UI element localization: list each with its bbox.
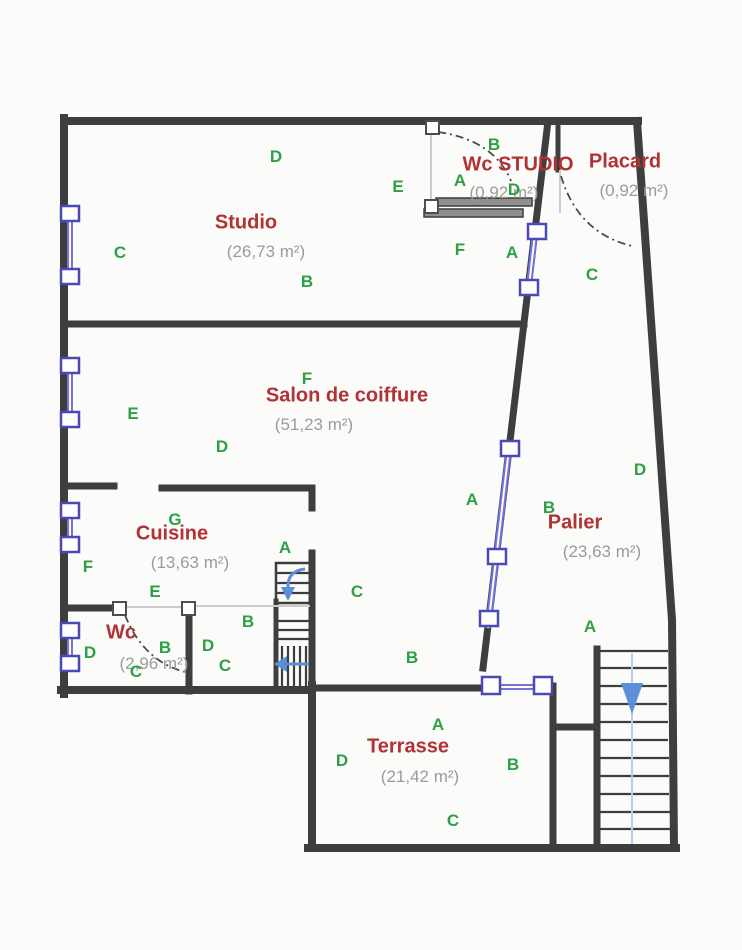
- dimension-letter-d: D: [84, 643, 96, 663]
- dimension-letter-e: E: [127, 404, 138, 424]
- room-name-wc-studio: Wc STUDIO: [462, 154, 573, 177]
- dimension-letter-b: B: [488, 135, 500, 155]
- dimension-letter-d: D: [270, 147, 282, 167]
- dimension-letter-b: B: [406, 648, 418, 668]
- dimension-letter-c: C: [114, 243, 126, 263]
- room-name-studio: Studio: [215, 212, 277, 235]
- dimension-letter-d: D: [508, 180, 520, 200]
- dimension-letter-d: D: [216, 437, 228, 457]
- room-name-salon: Salon de coiffure: [266, 385, 428, 408]
- room-area-placard: (0,92 m²): [600, 181, 669, 201]
- room-area-salon: (51,23 m²): [275, 415, 353, 435]
- dimension-letter-e: E: [392, 177, 403, 197]
- dimension-letter-a: A: [279, 538, 291, 558]
- dimension-letter-c: C: [447, 811, 459, 831]
- dimension-letter-f: F: [83, 557, 93, 577]
- room-name-wc: Wc: [106, 622, 136, 645]
- dimension-letter-b: B: [543, 498, 555, 518]
- room-area-terrasse: (21,42 m²): [381, 767, 459, 787]
- dimension-letter-b: B: [507, 755, 519, 775]
- room-area-palier: (23,63 m²): [563, 542, 641, 562]
- staircase-main: [597, 651, 670, 844]
- palier-bottom-window: [482, 677, 552, 694]
- dimension-letter-d: D: [202, 636, 214, 656]
- dimension-letter-b: B: [159, 638, 171, 658]
- dimension-letter-g: G: [168, 510, 181, 530]
- interior-walls: [64, 121, 597, 848]
- dimension-letter-d: D: [634, 460, 646, 480]
- staircase-small: [274, 563, 314, 687]
- dimension-letter-a: A: [466, 490, 478, 510]
- dimension-letter-f: F: [455, 240, 465, 260]
- dimension-letter-f: F: [302, 369, 312, 389]
- room-area-cuisine: (13,63 m²): [151, 553, 229, 573]
- dimension-letter-e: E: [149, 582, 160, 602]
- dimension-letter-a: A: [506, 243, 518, 263]
- dimension-letter-c: C: [586, 265, 598, 285]
- dimension-letter-a: A: [584, 617, 596, 637]
- dimension-letter-a: A: [432, 715, 444, 735]
- dimension-letter-b: B: [242, 612, 254, 632]
- dimension-letter-a: A: [454, 171, 466, 191]
- floorplan-drawing: [0, 0, 742, 950]
- dimension-letter-d: D: [336, 751, 348, 771]
- room-area-studio: (26,73 m²): [227, 242, 305, 262]
- dimension-letter-c: C: [351, 582, 363, 602]
- room-name-palier: Palier: [548, 512, 602, 535]
- dimension-letter-c: C: [130, 662, 142, 682]
- room-area-wc-studio: (0,92 m²): [470, 183, 539, 203]
- room-name-placard: Placard: [589, 151, 661, 174]
- room-name-terrasse: Terrasse: [367, 736, 449, 759]
- floorplan-page: Studio(26,73 m²)Wc STUDIO(0,92 m²)Placar…: [0, 0, 742, 950]
- dimension-letter-c: C: [219, 656, 231, 676]
- dimension-letter-b: B: [301, 272, 313, 292]
